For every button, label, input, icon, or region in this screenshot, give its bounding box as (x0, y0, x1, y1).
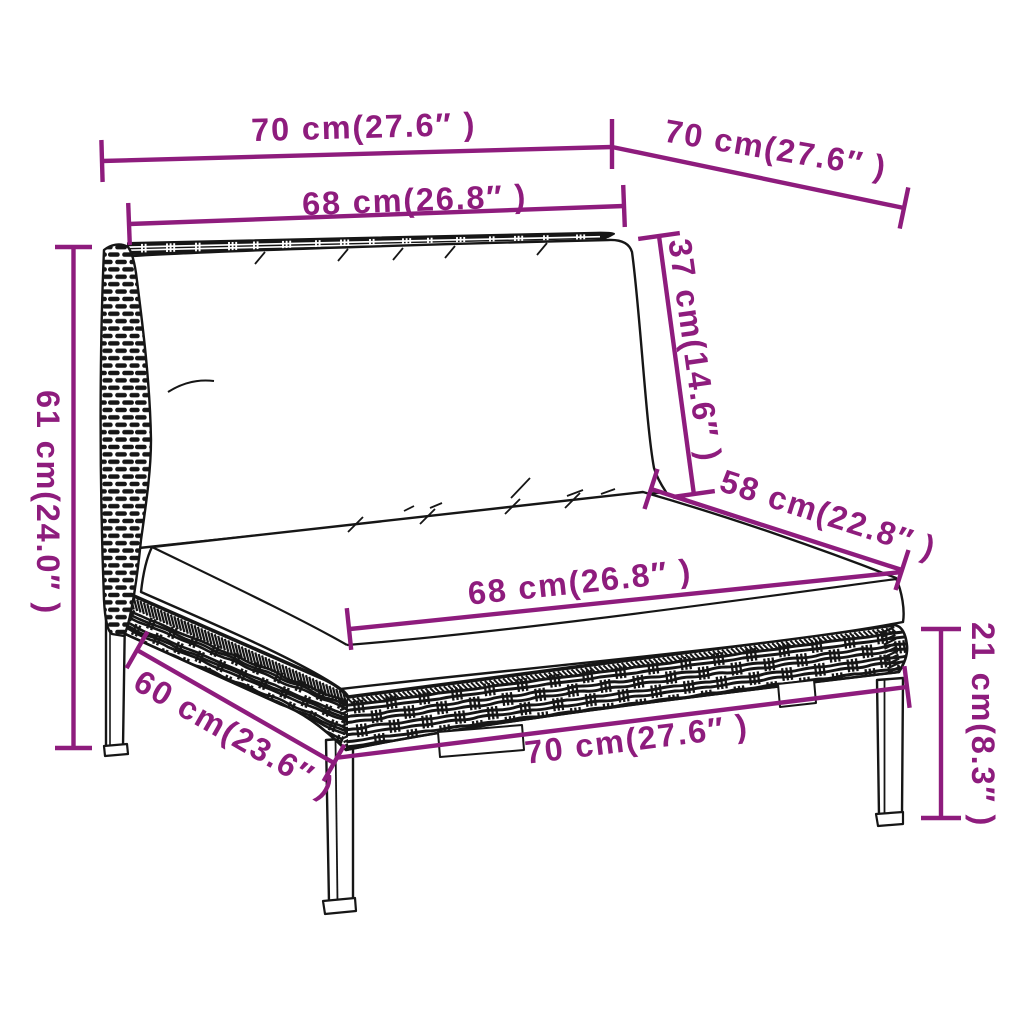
svg-text:21 cm(8.3″ ): 21 cm(8.3″ ) (965, 622, 1001, 827)
svg-text:61 cm(24.0″ ): 61 cm(24.0″ ) (30, 390, 66, 615)
svg-text:70 cm(27.6″ ): 70 cm(27.6″ ) (251, 106, 477, 148)
